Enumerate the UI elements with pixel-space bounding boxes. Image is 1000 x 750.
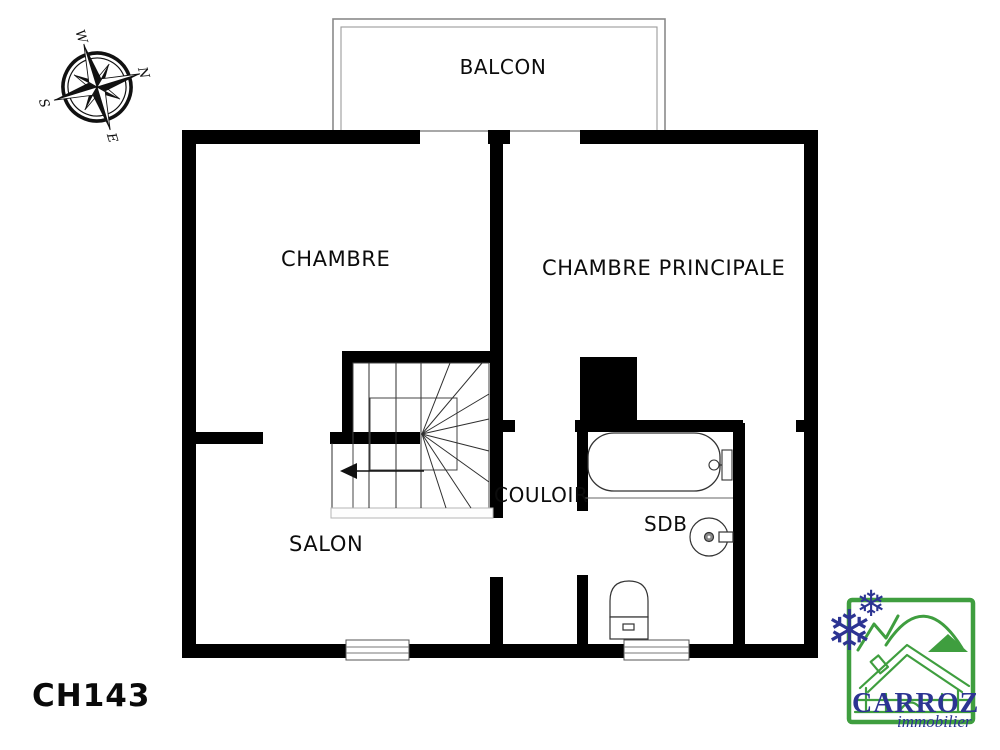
- room-label-chambre: CHAMBRE: [281, 247, 390, 271]
- plan-reference: CH143: [32, 678, 150, 714]
- walls: [182, 130, 818, 658]
- bathtub-icon: [585, 433, 733, 498]
- floor-plan-canvas: N E S W: [0, 0, 1000, 750]
- compass-rose: N E S W: [19, 14, 167, 162]
- wall-salon-chambre-a: [196, 432, 263, 444]
- wall-couloir-stub-left: [503, 420, 515, 432]
- wall-stairs-left: [342, 351, 353, 443]
- wall-couloir-stub-right: [796, 420, 808, 432]
- sink-icon: [690, 518, 733, 556]
- window-icon-salon: [346, 640, 409, 660]
- window-icon-sdb: [624, 640, 689, 660]
- compass-major-points: [41, 31, 153, 143]
- wall-bedroom-divider-lower: [490, 577, 503, 644]
- wall-top-left: [182, 130, 420, 144]
- wall-top-right: [580, 130, 818, 144]
- room-label-couloir: COULOIR: [494, 483, 589, 507]
- floor-plan-drawing: N E S W: [0, 0, 1000, 750]
- compass-south-label: S: [35, 97, 52, 110]
- compass-east-label: E: [103, 130, 121, 145]
- snowflake-small-icon: ❄: [856, 584, 886, 625]
- wall-top-mid: [488, 130, 510, 144]
- wall-stairs-top: [342, 351, 490, 363]
- toilet-icon: [610, 581, 648, 639]
- wall-left: [182, 130, 196, 658]
- wall-sdb-left-lower: [577, 575, 588, 644]
- room-label-sdb: SDB: [644, 512, 688, 536]
- wall-right: [804, 130, 818, 658]
- agency-logo: ❄ ❄ CARROZ immobilier: [826, 584, 979, 731]
- wall-bedroom-divider-upper: [490, 144, 503, 518]
- duct-block: [580, 357, 637, 423]
- room-label-chambre-principale: CHAMBRE PRINCIPALE: [542, 256, 785, 280]
- wall-bottom: [182, 644, 818, 658]
- wall-sdb-right: [733, 423, 745, 644]
- wall-salon-chambre-b: [330, 432, 420, 444]
- compass-north-label: N: [134, 64, 152, 81]
- logo-tagline-text: immobilier: [897, 712, 972, 731]
- compass-west-label: W: [71, 28, 90, 47]
- room-label-salon: SALON: [289, 532, 363, 556]
- stairs-arrow-icon: [340, 463, 357, 479]
- room-label-balcon: BALCON: [430, 55, 576, 79]
